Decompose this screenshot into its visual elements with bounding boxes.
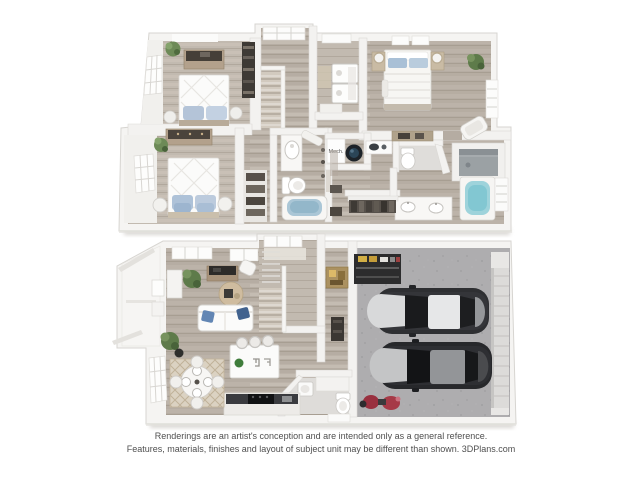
svg-text:Renderings are an artist's con: Renderings are an artist's conception an…	[155, 431, 487, 441]
svg-text:Features, materials, finishes: Features, materials, finishes and layout…	[127, 444, 516, 454]
